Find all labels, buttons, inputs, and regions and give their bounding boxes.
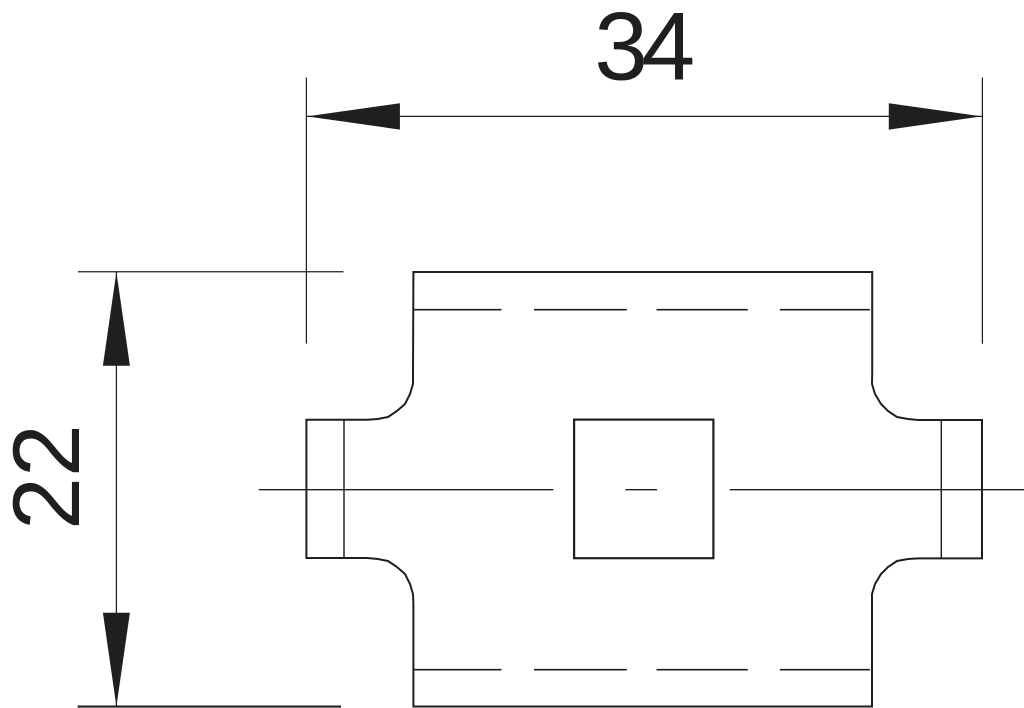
svg-text:22: 22 — [0, 424, 100, 530]
svg-text:34: 34 — [594, 0, 695, 100]
